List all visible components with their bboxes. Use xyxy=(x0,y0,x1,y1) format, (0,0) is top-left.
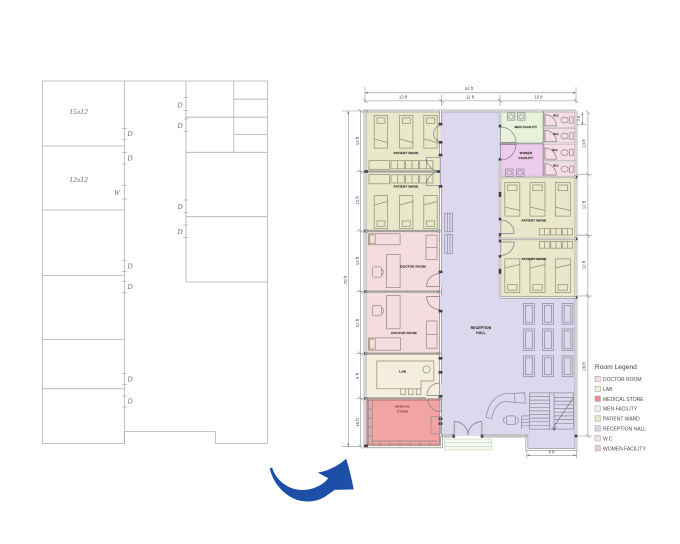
svg-text:D: D xyxy=(127,130,133,138)
svg-text:D: D xyxy=(127,155,133,163)
svg-text:PATIENT WARD: PATIENT WARD xyxy=(521,219,547,223)
svg-text:44 ft: 44 ft xyxy=(465,86,474,91)
svg-text:10 ft: 10 ft xyxy=(355,418,360,427)
svg-text:WOMEN FACILITY: WOMEN FACILITY xyxy=(603,446,646,452)
svg-text:RECEPTION: RECEPTION xyxy=(471,326,492,330)
svg-text:12 ft: 12 ft xyxy=(355,318,360,327)
svg-text:15 ft: 15 ft xyxy=(534,94,543,99)
svg-text:LAB: LAB xyxy=(603,387,613,393)
svg-text:D: D xyxy=(177,122,183,130)
svg-text:FACILITY: FACILITY xyxy=(519,156,534,160)
svg-text:12x12: 12x12 xyxy=(69,175,88,184)
svg-text:STORE: STORE xyxy=(397,409,408,413)
svg-text:12 ft: 12 ft xyxy=(355,136,360,145)
svg-text:MEN FACILITY: MEN FACILITY xyxy=(603,407,638,413)
svg-text:D: D xyxy=(177,203,183,211)
svg-text:DOCTOR ROOM: DOCTOR ROOM xyxy=(391,331,417,335)
svg-text:W.C: W.C xyxy=(553,164,558,168)
svg-text:D: D xyxy=(177,228,183,236)
svg-text:12 ft: 12 ft xyxy=(355,196,360,205)
svg-text:15x12: 15x12 xyxy=(69,107,88,116)
svg-text:WOMEN: WOMEN xyxy=(520,151,533,155)
svg-text:D: D xyxy=(127,398,133,406)
svg-text:D: D xyxy=(127,376,133,384)
svg-text:RECEPTION HALL: RECEPTION HALL xyxy=(603,427,646,433)
svg-text:HALL: HALL xyxy=(476,331,485,335)
svg-text:MEDICAL STORE: MEDICAL STORE xyxy=(603,397,644,403)
svg-text:W.C: W.C xyxy=(553,132,558,136)
svg-text:D: D xyxy=(177,102,183,110)
svg-text:D: D xyxy=(127,263,133,271)
svg-text:PATIENT WARD: PATIENT WARD xyxy=(521,257,547,261)
svg-text:28 ft: 28 ft xyxy=(581,362,586,371)
svg-text:PATIENT WARD: PATIENT WARD xyxy=(394,151,420,155)
svg-text:11 ft: 11 ft xyxy=(466,94,475,99)
svg-text:13 ft: 13 ft xyxy=(399,94,408,99)
svg-text:13 ft: 13 ft xyxy=(581,139,586,148)
svg-text:PATIENT WARD: PATIENT WARD xyxy=(603,417,640,423)
svg-text:MEDICAL: MEDICAL xyxy=(395,405,410,409)
svg-text:12 ft: 12 ft xyxy=(355,256,360,265)
svg-text:W.C: W.C xyxy=(552,148,557,152)
svg-text:W.C: W.C xyxy=(603,436,613,442)
svg-text:9 ft: 9 ft xyxy=(355,372,360,379)
svg-text:12 ft: 12 ft xyxy=(581,200,586,209)
svg-text:LAB: LAB xyxy=(399,370,406,374)
svg-text:9 ft: 9 ft xyxy=(549,449,556,454)
svg-text:PATIENT WARD: PATIENT WARD xyxy=(394,184,420,188)
svg-text:70 ft: 70 ft xyxy=(343,275,348,284)
svg-text:W.C: W.C xyxy=(553,114,558,118)
svg-text:Room Legend: Room Legend xyxy=(595,364,637,371)
svg-text:MEN FACILITY: MEN FACILITY xyxy=(515,125,538,129)
svg-text:DOCTOR ROOM: DOCTOR ROOM xyxy=(400,265,426,269)
svg-text:3 ft: 3 ft xyxy=(576,115,581,121)
svg-text:12 ft: 12 ft xyxy=(581,260,586,269)
svg-text:D: D xyxy=(127,283,133,291)
svg-text:DOCTOR ROOM: DOCTOR ROOM xyxy=(603,377,642,383)
